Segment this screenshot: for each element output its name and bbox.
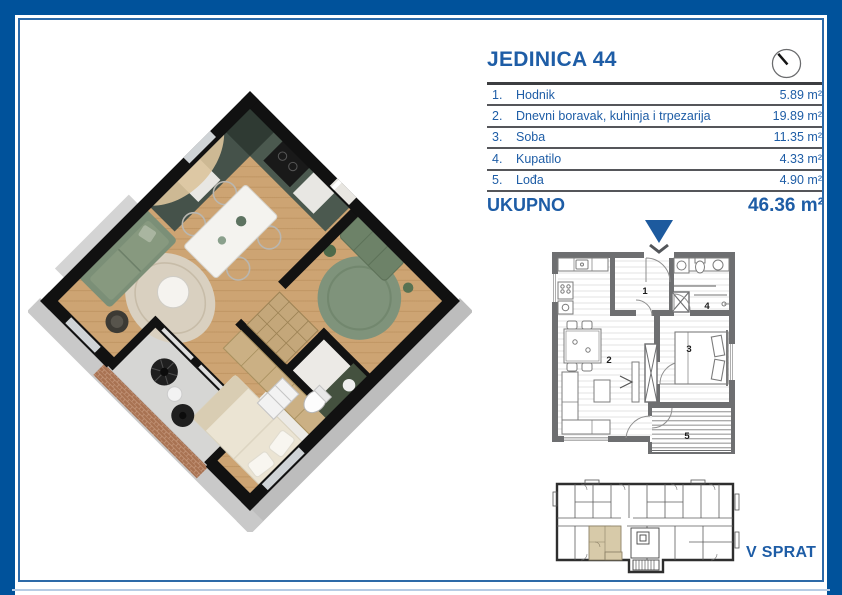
room-area: 4.33 m² bbox=[780, 152, 824, 166]
loggia bbox=[652, 408, 731, 450]
room-label-4: 4 bbox=[704, 301, 710, 312]
room-name: Soba bbox=[516, 130, 774, 144]
room-area: 19.89 m² bbox=[773, 109, 824, 123]
room-name: Lođa bbox=[516, 173, 780, 187]
room-number: 3. bbox=[487, 130, 516, 144]
room-label-1: 1 bbox=[642, 286, 648, 297]
room-name: Kupatilo bbox=[516, 152, 780, 166]
floor-plan-3d bbox=[28, 70, 472, 532]
area-table: 1. Hodnik 5.89 m² 2. Dnevni boravak, kuh… bbox=[487, 82, 824, 220]
compass-icon bbox=[771, 48, 802, 79]
table-row: 5. Lođa 4.90 m² bbox=[487, 171, 824, 192]
dining-set bbox=[564, 321, 601, 371]
room-label-2: 2 bbox=[606, 355, 611, 366]
floor-label: V SPRAT bbox=[746, 544, 816, 562]
total-label: UKUPNO bbox=[487, 195, 565, 216]
room-label-3: 3 bbox=[686, 344, 691, 355]
table-row: 4. Kupatilo 4.33 m² bbox=[487, 149, 824, 170]
entrance-arrow-icon bbox=[645, 220, 673, 252]
floor-plan-2d: 1 2 3 4 5 bbox=[548, 216, 752, 462]
room-number: 5. bbox=[487, 173, 516, 187]
room-name: Dnevni boravak, kuhinja i trpezarija bbox=[516, 109, 773, 123]
room-area: 5.89 m² bbox=[780, 88, 824, 102]
room-number: 1. bbox=[487, 88, 516, 102]
room-area: 4.90 m² bbox=[780, 173, 824, 187]
building-key-plan bbox=[551, 476, 741, 574]
total-area: 46.36 m² bbox=[748, 195, 824, 217]
room-number: 4. bbox=[487, 152, 516, 166]
room-number: 2. bbox=[487, 109, 516, 123]
unit-info-panel: JEDINICA 44 1. Hodnik 5.89 m² 2. Dnevni … bbox=[487, 48, 824, 220]
room-area: 11.35 m² bbox=[774, 130, 824, 144]
room-label-5: 5 bbox=[684, 431, 690, 442]
brochure-page: JEDINICA 44 1. Hodnik 5.89 m² 2. Dnevni … bbox=[0, 0, 842, 595]
table-row: 2. Dnevni boravak, kuhinja i trpezarija … bbox=[487, 106, 824, 127]
wardrobe-box bbox=[645, 344, 657, 402]
page-frame-bottom-line bbox=[12, 589, 830, 591]
table-row: 1. Hodnik 5.89 m² bbox=[487, 85, 824, 106]
bed-2d bbox=[675, 330, 728, 386]
table-row: 3. Soba 11.35 m² bbox=[487, 128, 824, 149]
stair-core bbox=[631, 528, 659, 570]
highlighted-unit bbox=[589, 526, 622, 560]
room-name: Hodnik bbox=[516, 88, 780, 102]
